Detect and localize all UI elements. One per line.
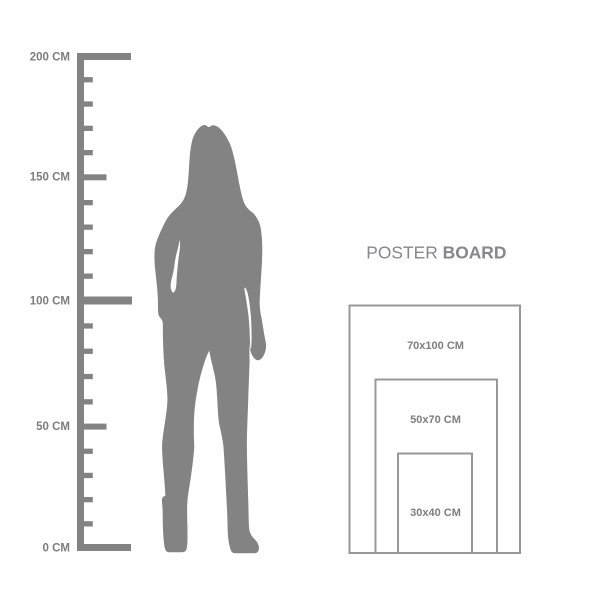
svg-text:30x40 CM: 30x40 CM: [410, 507, 461, 519]
svg-text:50 CM: 50 CM: [36, 421, 70, 433]
svg-text:70x100 CM: 70x100 CM: [407, 340, 464, 352]
svg-text:150 CM: 150 CM: [30, 172, 70, 184]
svg-text:50x70 CM: 50x70 CM: [410, 414, 461, 426]
svg-text:POSTER BOARD: POSTER BOARD: [366, 242, 506, 262]
svg-text:100 CM: 100 CM: [30, 296, 70, 308]
svg-text:200 CM: 200 CM: [30, 52, 70, 64]
svg-text:0 CM: 0 CM: [43, 543, 70, 555]
